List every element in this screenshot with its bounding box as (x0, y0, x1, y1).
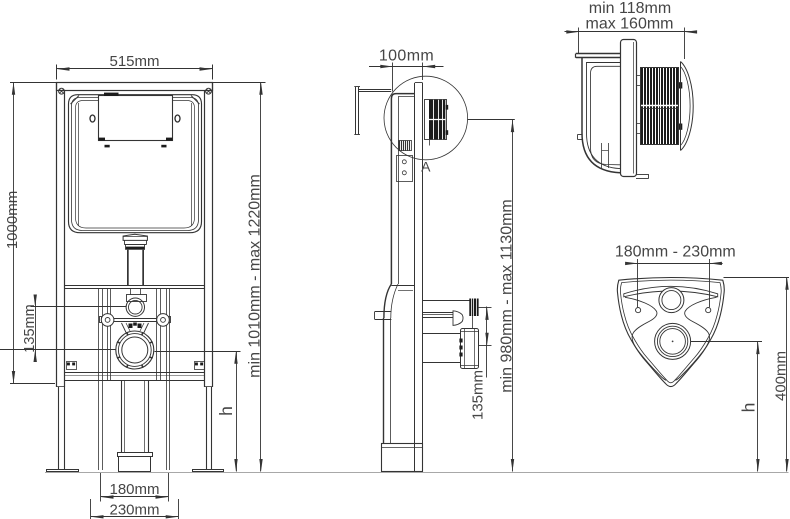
svg-text:100mm: 100mm (379, 48, 434, 65)
svg-text:135mm: 135mm (470, 370, 487, 420)
svg-text:400mm: 400mm (773, 351, 790, 401)
svg-text:180mm - 230mm: 180mm - 230mm (615, 244, 736, 261)
svg-text:h: h (739, 403, 759, 413)
svg-text:min 1010mm - max 1220mm: min 1010mm - max 1220mm (247, 174, 264, 378)
svg-text:515mm: 515mm (109, 53, 159, 70)
svg-text:min 980mm - max 1130mm: min 980mm - max 1130mm (499, 199, 516, 393)
svg-text:230mm: 230mm (109, 502, 159, 519)
svg-text:max 160mm: max 160mm (585, 16, 673, 33)
svg-text:180mm: 180mm (109, 481, 159, 498)
svg-text:1000mm: 1000mm (4, 191, 21, 249)
svg-text:min 118mm: min 118mm (589, 0, 671, 17)
svg-text:h: h (216, 406, 236, 416)
svg-text:A: A (421, 159, 431, 175)
